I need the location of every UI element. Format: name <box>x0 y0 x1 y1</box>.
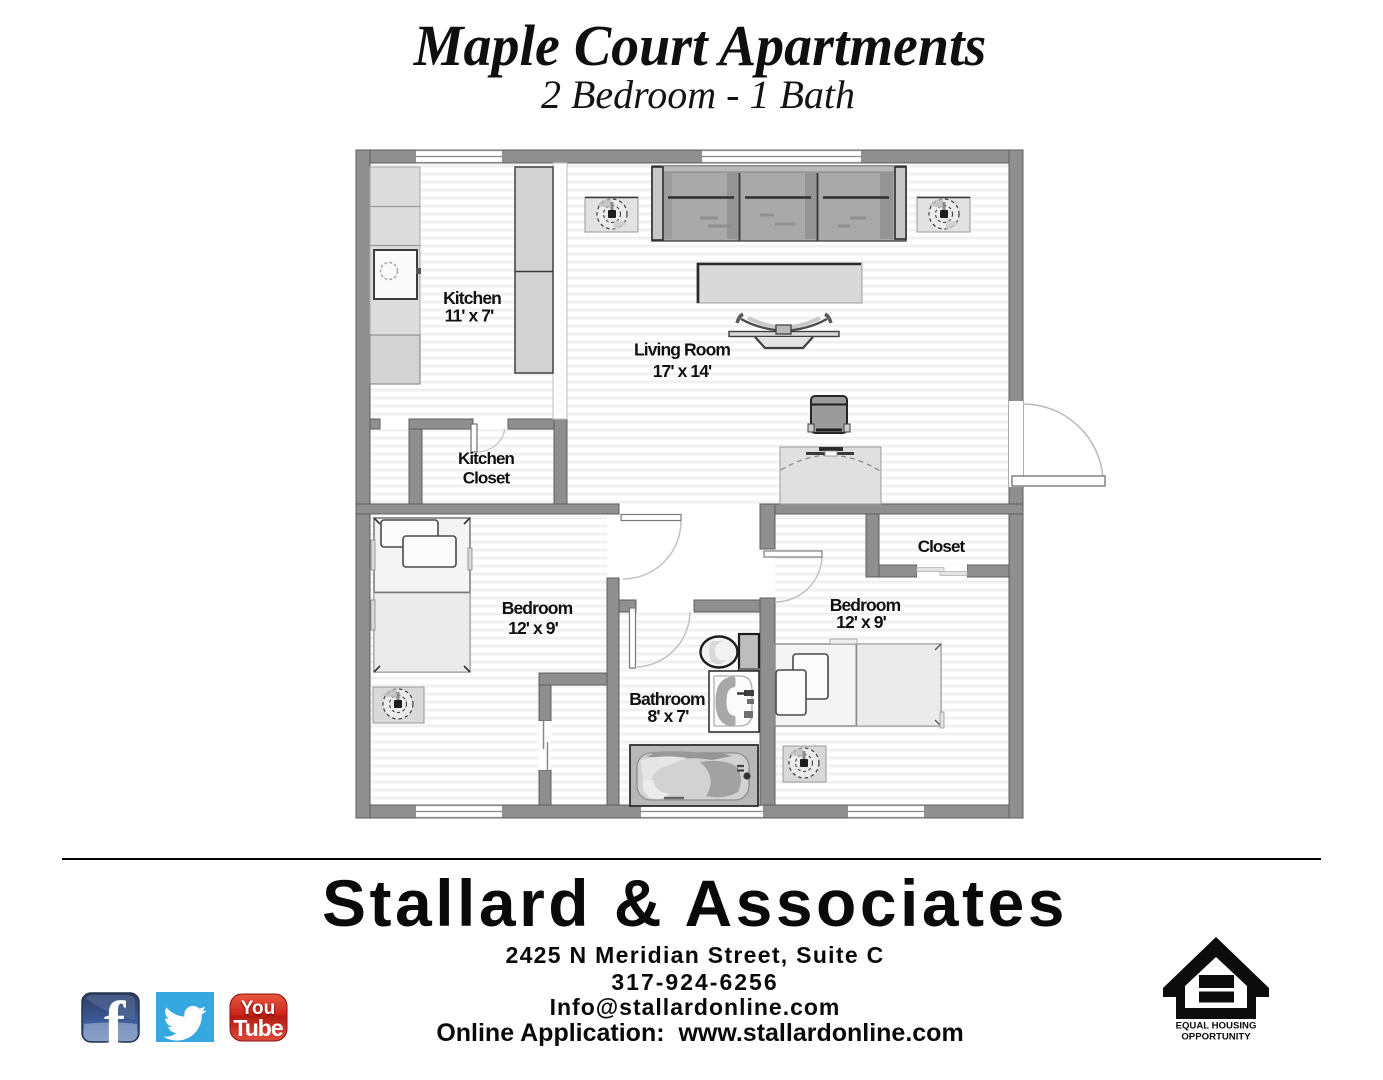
svg-text:Tube: Tube <box>233 1015 282 1041</box>
svg-text:Closet: Closet <box>463 469 511 488</box>
svg-text:Living Room: Living Room <box>634 340 730 360</box>
svg-text:Bedroom: Bedroom <box>502 598 573 618</box>
svg-text:8' x 7': 8' x 7' <box>648 706 690 726</box>
svg-text:Closet: Closet <box>918 537 966 556</box>
svg-text:11' x 7': 11' x 7' <box>445 306 495 326</box>
svg-text:Kitchen: Kitchen <box>458 449 515 468</box>
svg-text:EQUAL HOUSING: EQUAL HOUSING <box>1176 1021 1257 1032</box>
svg-text:12' x 9': 12' x 9' <box>508 618 559 638</box>
svg-text:OPPORTUNITY: OPPORTUNITY <box>1181 1032 1251 1043</box>
svg-text:17' x 14': 17' x 14' <box>653 361 712 381</box>
svg-text:f: f <box>104 988 126 1059</box>
svg-text:12' x 9': 12' x 9' <box>836 612 887 632</box>
